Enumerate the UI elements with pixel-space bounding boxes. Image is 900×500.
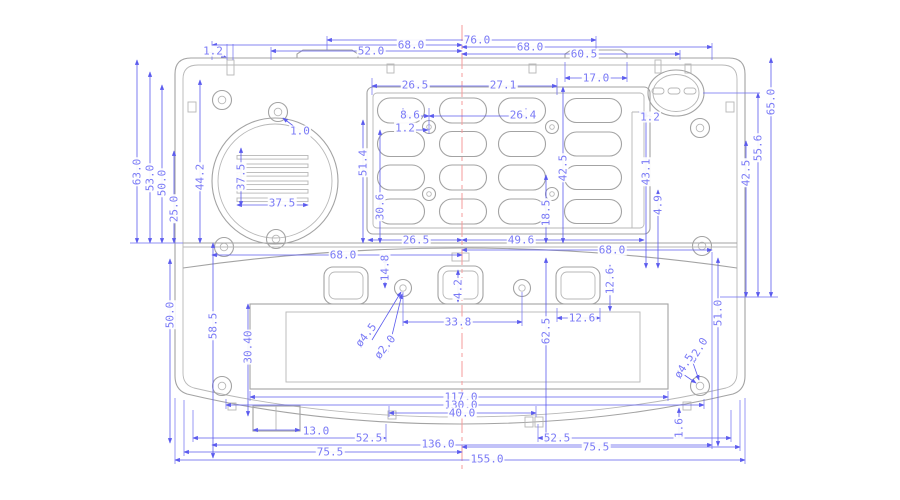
display-window-inner: [286, 312, 640, 382]
display-window-outer: [250, 304, 668, 389]
housing-inner-outline: [183, 65, 737, 417]
housing-outer-outline: [175, 58, 745, 424]
center-tab: [452, 253, 469, 261]
outline-layer: [175, 50, 745, 431]
mic-slot: [684, 88, 696, 94]
drawing-svg: [0, 0, 900, 500]
cad-drawing-canvas: 1.252.068.076.068.060.517.026.527.18.626…: [0, 0, 900, 500]
speaker-grille: [237, 156, 308, 202]
dimension-layer: [130, 36, 778, 464]
mic-circle-inner: [653, 75, 699, 112]
slot: [726, 102, 734, 112]
keypad-plate-inner: [373, 93, 644, 228]
slot: [188, 102, 196, 112]
slot: [655, 60, 661, 73]
lower-section-arc: [183, 248, 737, 268]
mic-slot: [668, 88, 680, 94]
slot: [227, 60, 234, 75]
bottom-connector: [253, 406, 300, 431]
keypad-buttons: [378, 98, 622, 224]
keypad-plate-outer: [367, 87, 650, 234]
